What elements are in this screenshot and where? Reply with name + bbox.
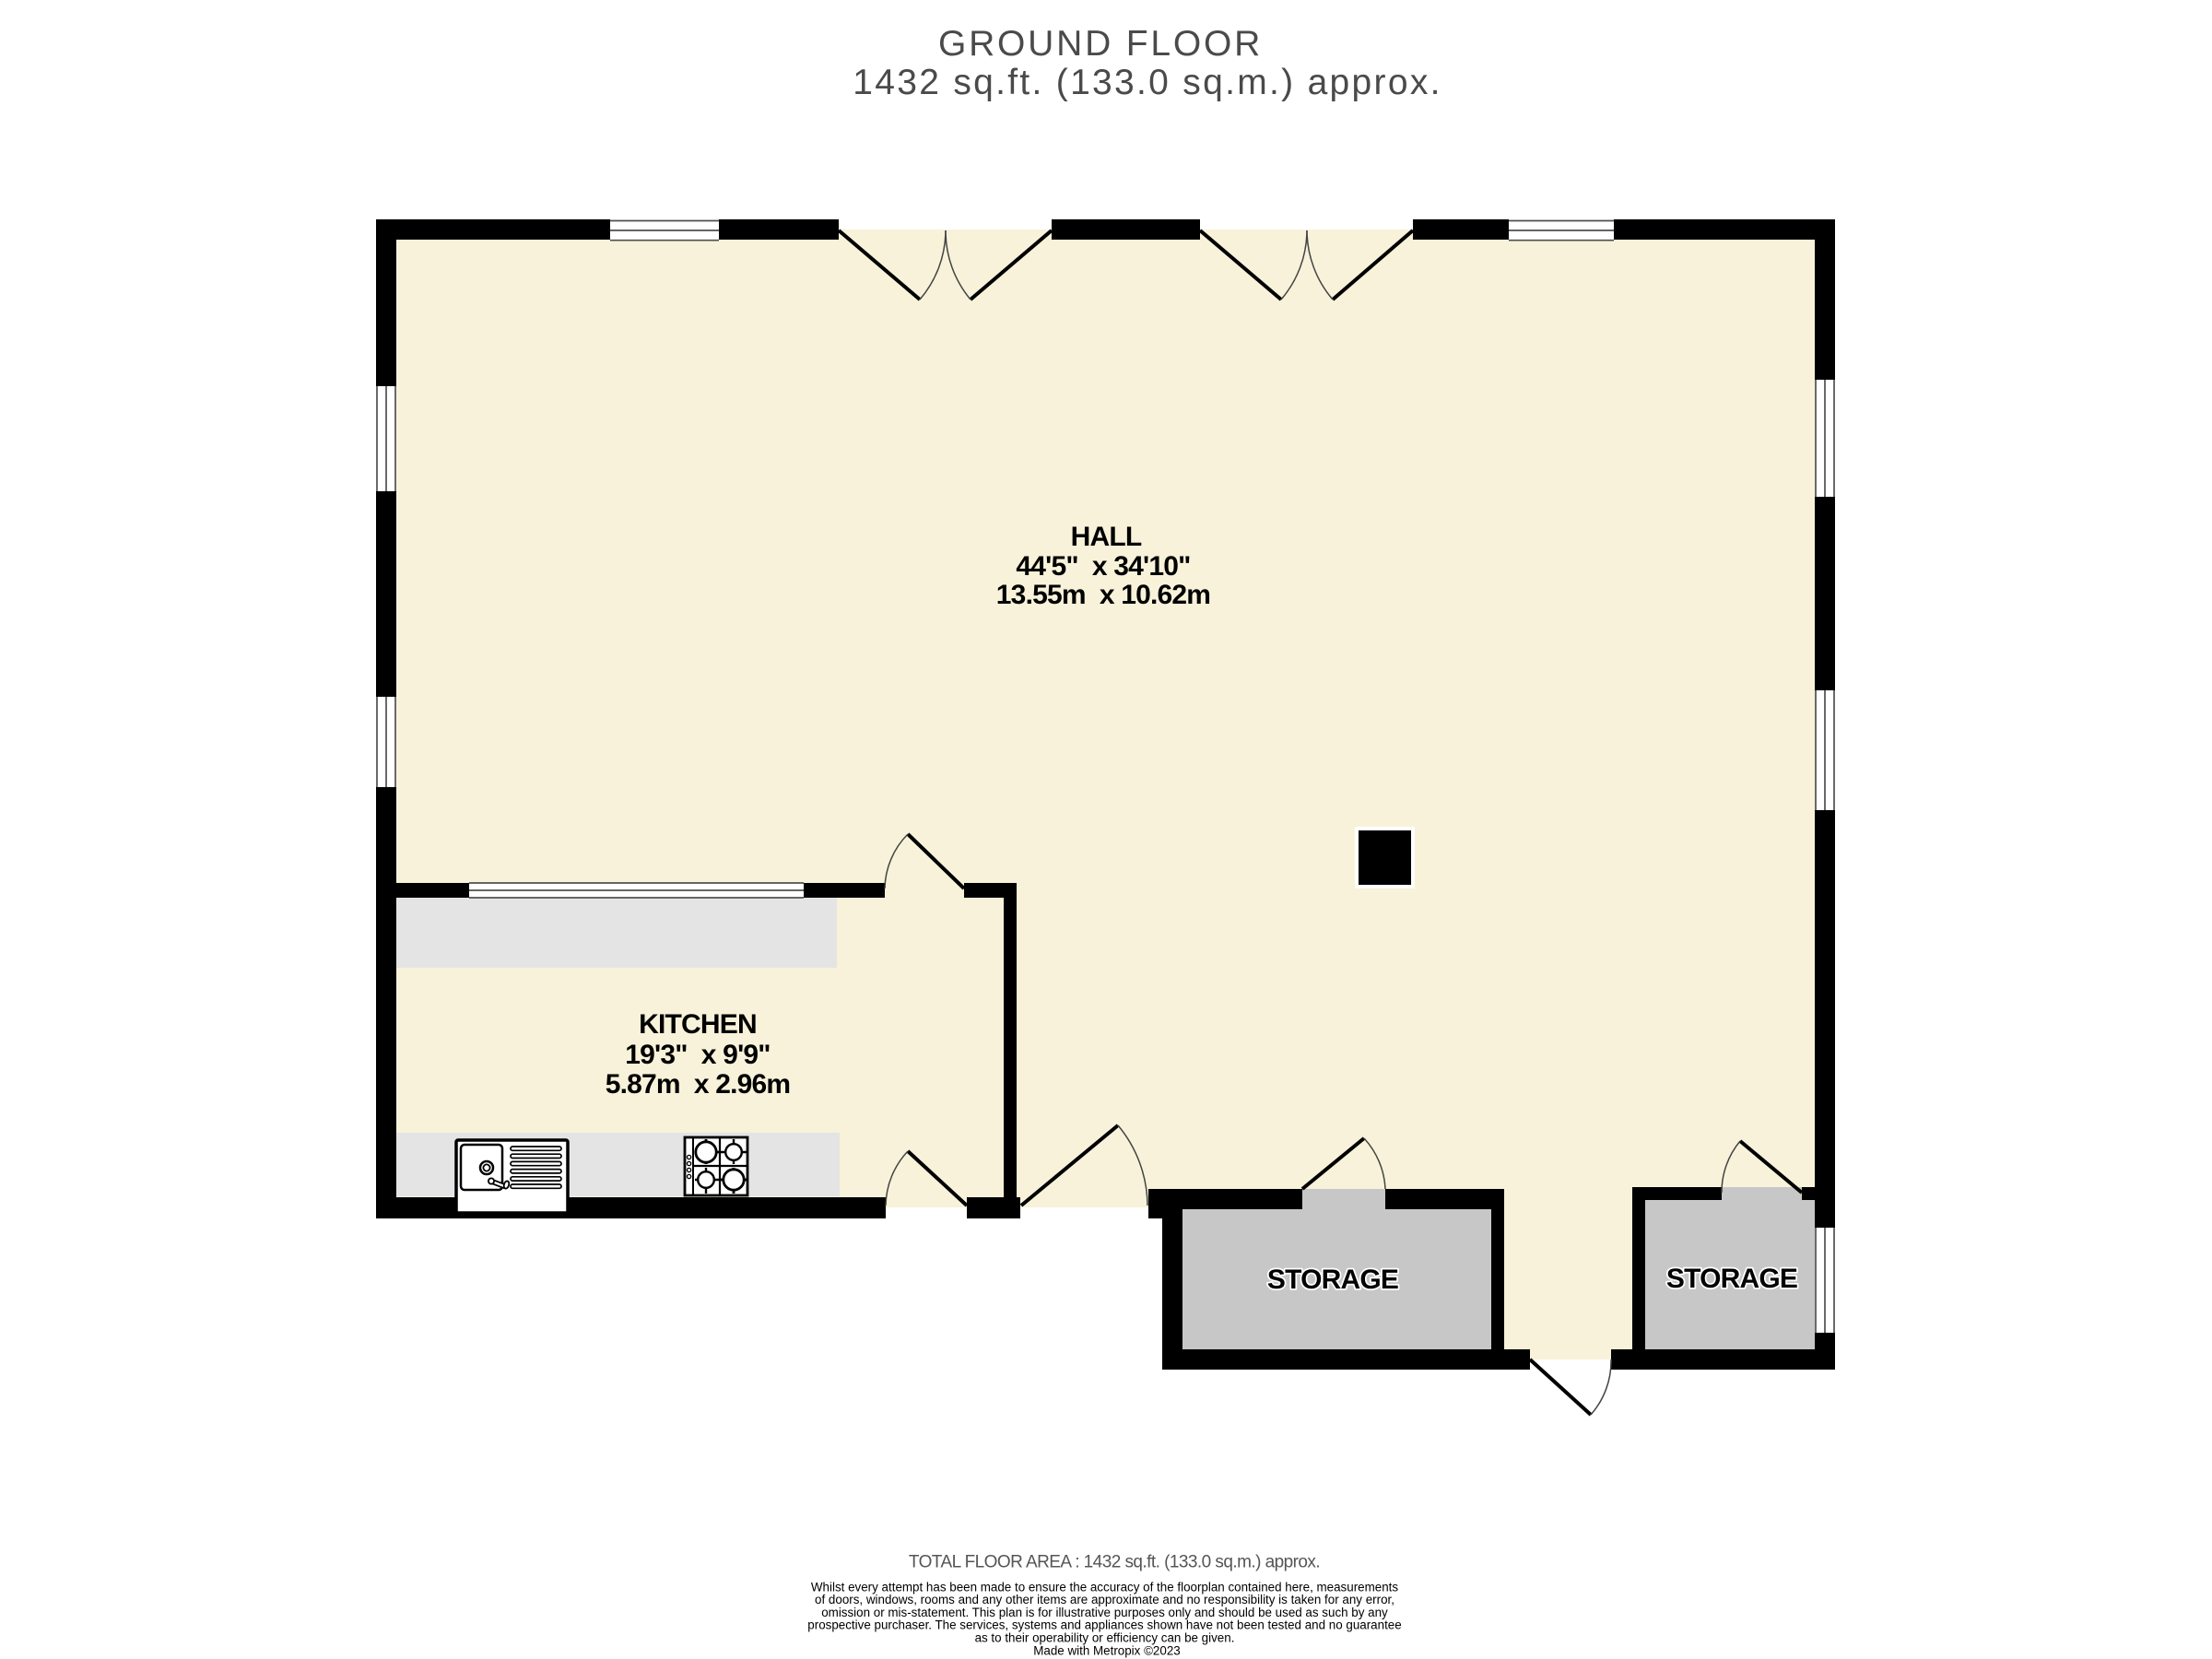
- svg-text:omission or mis-statement. Thi: omission or mis-statement. This plan is …: [821, 1606, 1388, 1619]
- svg-text:STORAGE: STORAGE: [1666, 1264, 1797, 1294]
- svg-text:STORAGE: STORAGE: [1267, 1265, 1398, 1295]
- svg-text:prospective purchaser. The ser: prospective purchaser. The services, sys…: [807, 1618, 1401, 1632]
- svg-text:19'3" x 9'9": 19'3" x 9'9": [625, 1040, 770, 1070]
- svg-text:5.87m x 2.96m: 5.87m x 2.96m: [606, 1069, 791, 1100]
- svg-text:TOTAL FLOOR AREA : 1432 sq.ft.: TOTAL FLOOR AREA : 1432 sq.ft. (133.0 sq…: [909, 1553, 1320, 1572]
- svg-text:KITCHEN: KITCHEN: [639, 1009, 757, 1040]
- svg-text:Made with Metropix ©2023: Made with Metropix ©2023: [1033, 1643, 1180, 1657]
- svg-text:HALL: HALL: [1071, 522, 1142, 552]
- svg-text:of doors, windows, rooms and a: of doors, windows, rooms and any other i…: [815, 1593, 1394, 1606]
- svg-text:13.55m x 10.62m: 13.55m x 10.62m: [996, 580, 1210, 610]
- svg-text:Whilst every attempt has been: Whilst every attempt has been made to en…: [811, 1580, 1398, 1594]
- svg-text:44'5" x 34'10": 44'5" x 34'10": [1016, 551, 1190, 582]
- svg-text:GROUND FLOOR: GROUND FLOOR: [938, 24, 1263, 64]
- svg-text:1432 sq.ft. (133.0 sq.m.) appr: 1432 sq.ft. (133.0 sq.m.) approx.: [853, 63, 1442, 102]
- svg-text:as to their operability or eff: as to their operability or efficiency ca…: [975, 1631, 1235, 1645]
